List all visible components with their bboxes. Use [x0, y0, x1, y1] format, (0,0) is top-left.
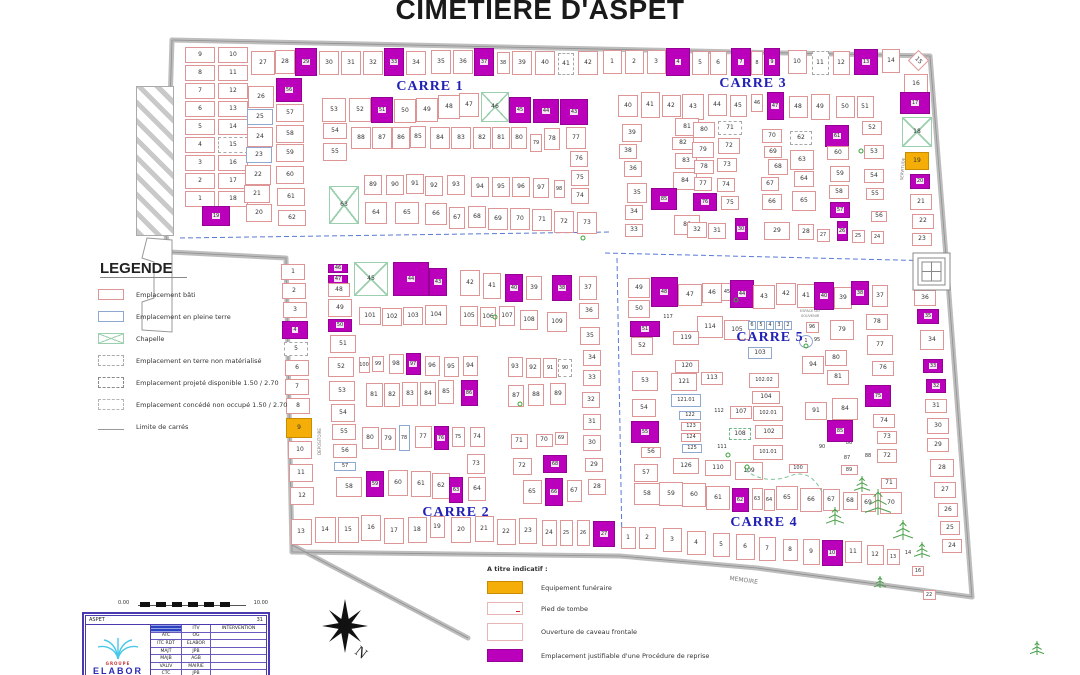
- plot-carre4-5-88: 88: [862, 452, 875, 461]
- plot-carre1-46: 46: [481, 92, 509, 122]
- plot-carre2-78: 78: [399, 425, 410, 451]
- plot-carre3-44: 44: [708, 94, 727, 116]
- plot-carre2-56: 56: [333, 444, 357, 458]
- logo-elabor-text: ELABOR: [93, 666, 143, 675]
- plot-carre1-top-39: 39: [512, 51, 532, 75]
- plot-carre3-39: 39: [622, 124, 642, 142]
- tb-row-majb: MAJBAGB: [151, 655, 266, 663]
- plot-carre2-40: 40: [505, 274, 523, 302]
- plot-carre4-5-24: 24: [942, 539, 962, 553]
- plot-carre4-5-42: 42: [776, 283, 796, 305]
- plot-carre2-63: 63: [449, 477, 463, 503]
- plot-carre4-5-107: 107: [730, 406, 752, 419]
- plot-carre3-58: 58: [829, 185, 849, 199]
- plot-carre4-5-57: 57: [634, 464, 658, 482]
- plot-carre3-50: 50: [836, 96, 855, 118]
- plot-carre3-19: 19: [905, 152, 929, 170]
- plot-carre2-99: 99: [372, 356, 384, 372]
- commune-name: ASPET: [89, 617, 105, 623]
- plot-carre1-west-2: 2: [185, 173, 215, 189]
- plot-carre1-top-32: 32: [363, 51, 383, 75]
- plot-carre1-70: 70: [510, 208, 530, 230]
- plot-carre3-47: 47: [767, 92, 784, 120]
- plot-carre1-57: 57: [276, 104, 304, 122]
- scale-max-label: 10.00: [254, 600, 268, 606]
- hatched-area: [136, 86, 174, 236]
- plot-carre4-5-90: 90: [816, 443, 829, 452]
- plot-carre3-75: 75: [721, 196, 739, 210]
- plot-carre2-97: 97: [406, 353, 421, 375]
- plot-carre1-west-6: 6: [185, 101, 215, 117]
- plot-carre1-west-1: 1: [185, 191, 215, 207]
- plot-carre2-46: 46: [328, 264, 348, 273]
- plot-carre2-94: 94: [463, 356, 478, 376]
- plot-carre3-62: 62: [790, 131, 812, 145]
- plot-carre4-5-72: 72: [877, 449, 897, 463]
- legend: LEGENDE Emplacement bâtiEmplacement en p…: [98, 258, 298, 442]
- plot-carre1-top-40: 40: [535, 51, 555, 75]
- plot-carre4-5-121.01: 121.01: [671, 394, 701, 407]
- plot-carre2-43: 43: [429, 268, 447, 296]
- plot-carre2-69: 69: [555, 432, 568, 445]
- plot-carre4-5-104: 104: [752, 391, 780, 404]
- legend-label: Emplacement en pleine terre: [136, 313, 231, 321]
- plot-carre3-28: 28: [798, 224, 814, 240]
- scale-segment: [156, 602, 166, 607]
- plot-carre2-100: 100: [359, 357, 370, 373]
- plot-carre4-5-41: 41: [797, 284, 815, 308]
- plot-carre4-5-126: 126: [673, 458, 699, 474]
- plot-carre4-5-79: 79: [830, 320, 854, 340]
- plot-carre4-5-28: 28: [930, 459, 954, 477]
- plot-carre2-59: 59: [366, 471, 384, 497]
- tb-row-ctc: CTCJPB: [151, 670, 266, 675]
- plot-carre4-5-2: 2: [784, 321, 792, 330]
- plot-carre1-75: 75: [571, 170, 589, 186]
- plot-carre3-55: 55: [866, 188, 884, 200]
- plot-carre4-5-12: 12: [867, 545, 884, 565]
- plot-carre4-5-39: 39: [834, 287, 852, 309]
- plot-carre2-55: 55: [332, 424, 356, 440]
- plot-carre3-21: 21: [910, 194, 932, 210]
- plot-carre3-18: 18: [902, 117, 932, 147]
- legend-swatch-bati: [98, 289, 124, 300]
- plot-carre4-5-40: 40: [814, 282, 834, 310]
- plot-carre4-5-112: 112: [713, 407, 726, 416]
- plot-carre4-5-35: 35: [917, 309, 939, 324]
- elabor-logo-graphic: [96, 637, 140, 661]
- department-number: 31: [257, 617, 263, 623]
- plot-carre1-49: 49: [416, 98, 438, 122]
- plot-carre4-5-114: 114: [697, 316, 723, 338]
- plot-carre2-24: 24: [542, 520, 557, 546]
- plot-carre4-5-84: 84: [832, 398, 858, 420]
- plot-carre1-55: 55: [323, 143, 347, 161]
- plot-carre4-5-55: 55: [631, 421, 659, 443]
- plot-carre1-50: 50: [394, 99, 416, 123]
- plot-carre1-top-29: 29: [295, 48, 317, 76]
- plot-carre1-west-10: 10: [218, 47, 248, 63]
- plot-carre3-36: 36: [624, 161, 642, 177]
- plot-carre1-85: 85: [410, 126, 426, 148]
- plot-carre4-5-85: 85: [827, 420, 853, 442]
- plot-carre1-top-35: 35: [431, 50, 451, 74]
- plot-carre3-34: 34: [625, 205, 643, 220]
- plot-carre4-5-58: 58: [634, 483, 660, 505]
- tb-col-itv: ITV: [182, 625, 211, 632]
- plot-carre1-west-8: 8: [185, 65, 215, 81]
- plot-carre4-5-49: 49: [628, 278, 650, 298]
- plot-carre1-94: 94: [471, 177, 489, 197]
- indicatif-label: Ouverture de caveau frontale: [541, 628, 637, 636]
- plot-carre4-5-10: 10: [822, 540, 843, 566]
- legend-label: Limite de carrés: [136, 423, 188, 431]
- plot-carre4-5-56: 56: [641, 447, 661, 458]
- plot-carre1-west-16: 16: [218, 155, 248, 171]
- plot-carre4-5-81: 81: [827, 370, 849, 385]
- plot-carre1-west-26: 26: [248, 86, 274, 108]
- scale-segment: [172, 602, 182, 607]
- indicatif-items: Equipement funérairePied de tombeOuvertu…: [487, 581, 777, 662]
- plot-carre4-5-13: 13: [887, 549, 900, 565]
- plot-carre2-95: 95: [444, 357, 459, 377]
- plot-carre2-54: 54: [331, 404, 355, 422]
- scale-segment: [188, 602, 198, 607]
- indicatif-label: Pied de tombe: [541, 605, 588, 613]
- plot-carre3-78: 78: [694, 160, 714, 174]
- plot-carre4-5-73: 73: [877, 431, 897, 444]
- plot-carre2-31: 31: [583, 414, 601, 430]
- plot-carre1-top-33: 33: [384, 48, 404, 76]
- plot-carre4-5-7: 7: [759, 537, 776, 561]
- map-annotation-espace-du: ESPACE DU: [800, 309, 820, 313]
- cemetery-plan-canvas: CIMETIÈRE D'ASPET 9876543211011121314151…: [0, 0, 1080, 675]
- plot-carre2-36: 36: [579, 303, 599, 319]
- plot-carre2-52: 52: [328, 357, 354, 377]
- plot-carre1-west-13: 13: [218, 101, 248, 117]
- scale-bar: 0.00 10.00: [118, 600, 268, 612]
- wall-edge: [292, 545, 468, 638]
- plot-carre1-top-31: 31: [341, 51, 361, 75]
- plot-carre1-west-3: 3: [185, 155, 215, 171]
- plot-carre4-5-33: 33: [923, 359, 943, 373]
- plot-carre3-77: 77: [694, 177, 712, 191]
- plot-carre1-72: 72: [554, 211, 574, 233]
- plot-carre4-5-36: 36: [914, 290, 936, 306]
- plot-carre4-5-61: 61: [706, 486, 730, 510]
- plot-carre4-5-59: 59: [659, 482, 683, 506]
- plot-carre2-41: 41: [483, 273, 501, 299]
- plot-carre2-92: 92: [526, 358, 541, 378]
- plot-carre4-5-52: 52: [631, 337, 653, 355]
- plot-carre1-76: 76: [570, 151, 588, 167]
- legend-swatch-chap: [98, 333, 124, 344]
- plot-carre3-1: 1: [603, 50, 622, 74]
- plot-carre4-5-71: 71: [881, 478, 897, 489]
- plot-carre3-12: 12: [833, 51, 850, 75]
- revision-table: ITVINTERVENTIONATCOGITC RDTELABORMAJTJPB…: [151, 625, 266, 675]
- plot-carre2-17: 17: [384, 518, 404, 544]
- plot-carre2-85: 85: [438, 380, 454, 404]
- plot-carre4-5-77: 77: [867, 335, 893, 355]
- indicatif-legend: A titre indicatif : Equipement funéraire…: [487, 565, 777, 670]
- plot-carre1-43: 43: [560, 99, 588, 125]
- section-label-carre-1: CARRE 1: [396, 79, 463, 95]
- legend-swatch-limite: [98, 429, 124, 430]
- plot-carre3-73: 73: [717, 158, 737, 172]
- plot-carre1-98: 98: [554, 180, 565, 198]
- plot-carre4-5-4: 4: [687, 531, 706, 555]
- plot-carre3-68: 68: [768, 159, 788, 175]
- plot-carre2-58: 58: [336, 477, 362, 497]
- tb-row-valiv: VALIVMAIRIE: [151, 663, 266, 671]
- plot-carre1-82: 82: [473, 127, 491, 149]
- plot-carre3-70: 70: [762, 129, 782, 143]
- title-block: ASPET 31 GROUPE ELABOR ITVINTERVENTIONAT…: [82, 612, 270, 675]
- plot-carre4-5-6: 6: [736, 534, 755, 560]
- plot-carre4-5-26: 26: [938, 503, 958, 517]
- plot-carre2-49: 49: [328, 299, 352, 317]
- plot-carre1-65: 65: [395, 202, 419, 224]
- plot-carre4-5-122: 122: [679, 411, 701, 420]
- plot-carre1-west-20: 20: [246, 204, 272, 222]
- plot-carre3-2: 2: [625, 50, 644, 74]
- plot-carre1-top-30: 30: [319, 51, 339, 75]
- plot-carre2-105: 105: [460, 306, 478, 326]
- plot-carre3-35: 35: [627, 183, 647, 203]
- plot-carre2-60: 60: [388, 470, 408, 496]
- plot-carre1-west-7: 7: [185, 83, 215, 99]
- plot-carre4-5-51: 51: [630, 321, 660, 337]
- plot-carre1-west-11: 11: [218, 65, 248, 81]
- plot-carre2-88: 88: [528, 384, 544, 406]
- indicatif-swatch-caveau: [487, 623, 523, 641]
- tb-col-intervention: INTERVENTION: [211, 626, 266, 631]
- plot-carre3-24: 24: [871, 231, 884, 244]
- plot-carre3-33: 33: [625, 224, 643, 237]
- plot-carre2-29: 29: [585, 458, 603, 472]
- plot-carre4-5-47: 47: [678, 284, 702, 306]
- tb-logo-cell: [151, 625, 182, 632]
- plot-carre2-39: 39: [526, 276, 542, 300]
- plot-carre2-11: 11: [289, 464, 313, 482]
- section-label-carre-5: CARRE 5: [736, 330, 803, 346]
- plot-carre1-58: 58: [276, 125, 304, 143]
- plot-carre3-11: 11: [812, 51, 829, 75]
- plot-carre4-5-94: 94: [802, 356, 824, 374]
- plot-carre3-52: 52: [862, 121, 882, 135]
- section-boundary-dashed: [180, 232, 610, 238]
- plot-carre2-102: 102: [382, 308, 402, 326]
- plot-carre1-95: 95: [492, 177, 510, 197]
- plot-carre1-86: 86: [392, 127, 410, 149]
- scale-segment: [140, 602, 150, 607]
- legend-title: LEGENDE: [100, 260, 187, 278]
- plot-carre1-91: 91: [406, 174, 424, 194]
- plot-carre2-89: 89: [550, 383, 566, 405]
- plot-carre1-west-24: 24: [247, 127, 273, 147]
- plot-carre4-5-102.01: 102.01: [753, 406, 783, 421]
- plot-carre1-48: 48: [438, 95, 460, 119]
- plot-carre4-5-6: 6: [748, 321, 756, 330]
- plot-carre2-42: 42: [460, 270, 480, 296]
- legend-swatch-conc: [98, 399, 124, 410]
- plot-carre2-23: 23: [519, 518, 537, 544]
- plot-carre4-5-5: 5: [713, 533, 730, 557]
- plot-carre2-51: 51: [330, 335, 356, 353]
- plot-carre2-48: 48: [328, 283, 350, 297]
- indicatif-label: Equipement funéraire: [541, 584, 612, 592]
- plot-carre2-87: 87: [508, 385, 524, 407]
- plot-carre1-west-27: 27: [251, 51, 275, 75]
- plot-carre1-61: 61: [277, 188, 305, 206]
- plot-carre2-91: 91: [543, 358, 557, 378]
- plot-carre1-west-9: 9: [185, 47, 215, 63]
- plot-carre1-62: 62: [278, 210, 306, 226]
- plot-carre2-57: 57: [334, 462, 356, 471]
- plot-carre2-12: 12: [290, 487, 314, 505]
- plot-carre1-60: 60: [276, 166, 304, 184]
- scale-segment: [204, 602, 214, 607]
- plot-carre1-68: 68: [468, 206, 486, 228]
- elabor-logo: GROUPE ELABOR: [86, 625, 151, 675]
- plot-carre4-5-43: 43: [753, 285, 775, 309]
- plot-carre2-103: 103: [403, 307, 423, 325]
- legend-label: Emplacement projeté disponible 1.50 / 2.…: [136, 379, 279, 387]
- plot-carre3-76: 76: [693, 193, 717, 211]
- plot-carre4-5-119: 119: [673, 331, 699, 345]
- indicatif-title: A titre indicatif :: [487, 565, 777, 573]
- plot-carre3-56: 56: [871, 211, 887, 222]
- legend-label: Emplacement concédé non occupé 1.50 / 2.…: [136, 401, 287, 409]
- plot-carre1-west-12: 12: [218, 83, 248, 99]
- plot-carre4-5-121: 121: [671, 373, 697, 391]
- plot-carre3-67: 67: [761, 177, 779, 191]
- plot-carre4-5-25: 25: [940, 521, 960, 535]
- plot-carre4-5-102: 102: [755, 425, 783, 439]
- plot-carre1-87: 87: [372, 127, 392, 149]
- plot-carre4-5-100: 100: [789, 464, 808, 473]
- legend-item-2: Chapelle: [98, 332, 298, 345]
- map-annotation-depositoire: DEPOSITOIRE: [317, 428, 322, 455]
- plot-carre2-64: 64: [468, 477, 486, 501]
- plot-carre3-13: 13: [854, 49, 878, 75]
- plot-carre1-top-36: 36: [453, 50, 473, 74]
- scale-segment: [220, 602, 230, 607]
- plot-carre2-82: 82: [384, 383, 400, 407]
- legend-swatch-proj: [98, 377, 124, 388]
- plot-carre3-45: 45: [730, 95, 747, 117]
- legend-swatch-terre: [98, 311, 124, 322]
- plot-carre1-80: 80: [511, 127, 527, 149]
- plot-carre4-5-14: 14: [903, 548, 914, 558]
- plot-carre3-69: 69: [764, 146, 782, 158]
- plot-carre1-90: 90: [386, 175, 404, 195]
- plot-carre2-108: 108: [520, 310, 538, 330]
- plot-carre1-81: 81: [492, 127, 510, 149]
- plot-carre3-65: 65: [792, 191, 816, 211]
- plot-carre3-71: 71: [718, 121, 742, 135]
- plot-carre2-98: 98: [389, 354, 404, 374]
- plot-carre3-72: 72: [718, 138, 740, 154]
- plot-carre4-5-11: 11: [845, 541, 862, 563]
- plot-carre2-62: 62: [432, 473, 450, 499]
- plot-carre1-97: 97: [533, 178, 549, 198]
- title-block-inner: ASPET 31 GROUPE ELABOR ITVINTERVENTIONAT…: [85, 615, 267, 675]
- plot-carre4-5-125: 125: [682, 444, 702, 453]
- plot-carre4-5-65: 65: [776, 486, 798, 510]
- plot-carre2-101: 101: [359, 307, 381, 325]
- map-annotation-souvenir: SOUVENIR: [801, 314, 819, 318]
- plot-carre3-7: 7: [731, 48, 751, 76]
- plot-carre1-67: 67: [449, 207, 465, 229]
- legend-item-4: Emplacement projeté disponible 1.50 / 2.…: [98, 376, 298, 389]
- indicatif-item-3: Emplacement justifiable d'une Procédure …: [487, 649, 777, 662]
- plot-carre1-top-34: 34: [406, 51, 426, 75]
- plot-carre3-3: 3: [647, 50, 666, 74]
- plot-carre1-west-21: 21: [244, 185, 270, 203]
- plot-carre4-5-9: 9: [803, 539, 820, 565]
- plot-carre3-46: 46: [751, 94, 763, 112]
- plot-carre1-51: 51: [371, 97, 393, 123]
- tb-row-atc: ATCOG: [151, 633, 266, 641]
- plot-carre2-38: 38: [552, 275, 572, 301]
- plot-carre1-73: 73: [577, 212, 597, 234]
- indicatif-swatch-reprise: [487, 649, 523, 662]
- plot-carre1-92: 92: [425, 176, 443, 196]
- plot-carre3-54: 54: [864, 169, 884, 183]
- plot-carre4-5-109: 109: [735, 462, 763, 480]
- plot-carre3-38: 38: [619, 144, 637, 159]
- plot-carre4-5-66: 66: [800, 488, 822, 512]
- plot-carre4-5-95: 95: [812, 336, 822, 345]
- plot-carre2-34: 34: [583, 350, 601, 366]
- plot-carre3-49: 49: [811, 94, 830, 120]
- plot-carre1-69: 69: [488, 208, 508, 230]
- plot-carre4-5-44: 44: [730, 280, 754, 308]
- plot-carre4-5-48: 48: [651, 277, 678, 307]
- plot-carre1-west-15: 15: [218, 137, 248, 153]
- plot-carre4-5-102.02: 102.02: [749, 373, 779, 388]
- plot-carre4-5-1: 1: [621, 527, 636, 549]
- plot-carre2-28: 28: [588, 479, 606, 495]
- indicatif-label: Emplacement justifiable d'une Procédure …: [541, 652, 709, 660]
- plot-carre2-44: 44: [393, 262, 429, 296]
- plot-carre4-5-67: 67: [823, 489, 840, 511]
- plot-carre2-65: 65: [523, 480, 542, 504]
- plot-carre4-5-74: 74: [873, 414, 895, 428]
- plot-carre4-5-5: 5: [757, 321, 765, 330]
- plot-carre4-5-4: 4: [766, 321, 774, 330]
- plot-carre4-5-62: 62: [732, 488, 749, 512]
- plot-carre3-41: 41: [641, 92, 660, 118]
- plot-carre2-22: 22: [497, 519, 516, 545]
- section-boundary-dashed: [617, 258, 622, 545]
- plot-carre3-5: 5: [692, 51, 709, 75]
- legend-item-0: Emplacement bâti: [98, 288, 298, 301]
- plot-carre4-5-8: 8: [783, 539, 798, 561]
- plot-carre4-5-110: 110: [705, 460, 731, 476]
- plot-carre1-top-38: 38: [497, 52, 510, 74]
- legend-label: Emplacement en terre non matérialisé: [136, 357, 261, 365]
- plot-carre4-5-68: 68: [843, 492, 858, 510]
- plot-carre4-5-113: 113: [701, 372, 723, 385]
- plot-carre1-west-23: 23: [246, 147, 272, 163]
- plot-carre1-54: 54: [323, 123, 347, 139]
- legend-item-1: Emplacement en pleine terre: [98, 310, 298, 323]
- plot-carre3-64: 64: [794, 171, 814, 187]
- plot-carre2-61: 61: [411, 471, 431, 497]
